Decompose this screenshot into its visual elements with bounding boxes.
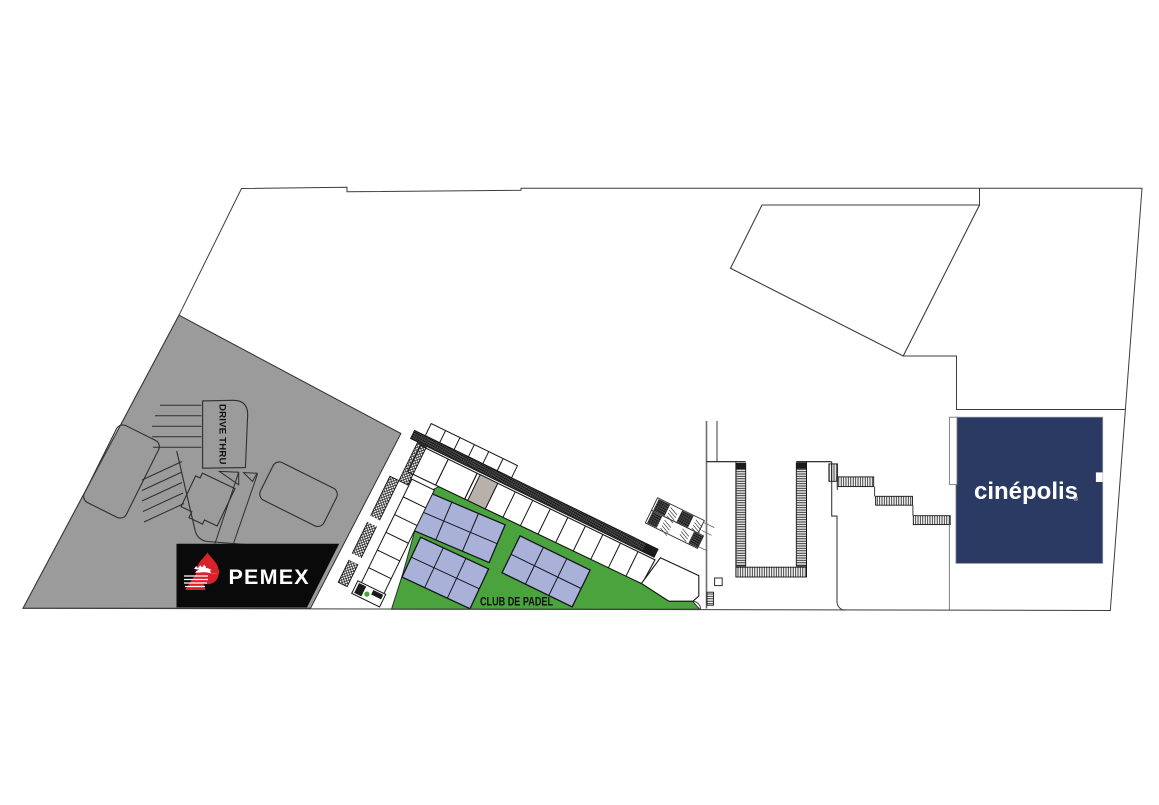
svg-text:CLUB DE PADEL: CLUB DE PADEL xyxy=(480,597,553,609)
svg-text:®: ® xyxy=(1074,496,1079,503)
svg-text:cinépolis: cinépolis xyxy=(974,478,1078,505)
svg-text:DRIVE THRU: DRIVE THRU xyxy=(217,404,228,465)
svg-text:PEMEX: PEMEX xyxy=(229,565,310,589)
